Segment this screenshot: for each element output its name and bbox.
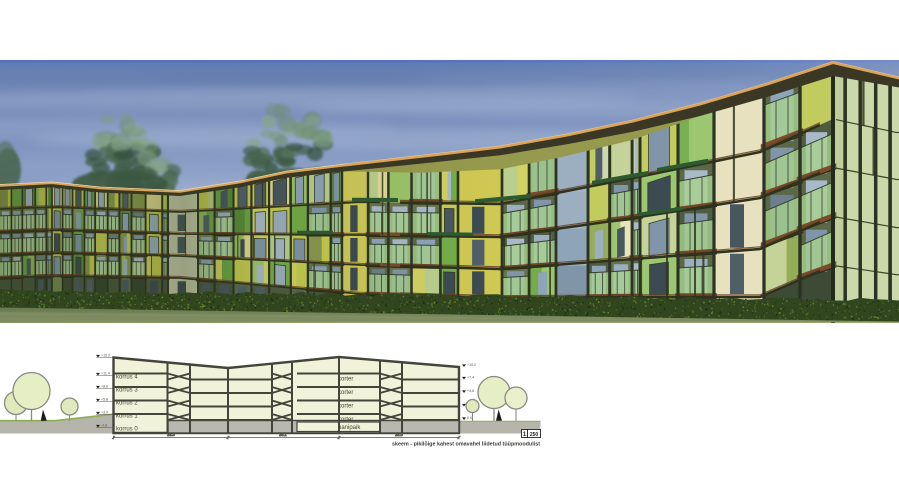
svg-text:28.5: 28.5 bbox=[167, 432, 176, 437]
svg-text:korrus 4: korrus 4 bbox=[116, 375, 138, 381]
svg-text:+11.4: +11.4 bbox=[101, 372, 110, 376]
svg-text:+5.8: +5.8 bbox=[101, 398, 108, 402]
svg-text:+15.2: +15.2 bbox=[101, 354, 110, 358]
svg-text:korrus 3: korrus 3 bbox=[116, 388, 138, 394]
svg-text:korter: korter bbox=[338, 404, 353, 410]
svg-text:+8.6: +8.6 bbox=[101, 385, 108, 389]
svg-text:korter: korter bbox=[338, 377, 353, 383]
svg-text:korrus 0: korrus 0 bbox=[116, 427, 138, 433]
svg-text:korrus 2: korrus 2 bbox=[116, 401, 138, 407]
svg-text:panipaik: panipaik bbox=[338, 425, 361, 431]
svg-text:korter: korter bbox=[338, 390, 353, 396]
svg-text:korrus 1: korrus 1 bbox=[116, 414, 138, 420]
svg-text:korter: korter bbox=[338, 417, 353, 423]
svg-text:0.0: 0.0 bbox=[467, 416, 472, 420]
svg-text:+3.0: +3.0 bbox=[101, 411, 108, 415]
svg-text:+10.2: +10.2 bbox=[467, 363, 476, 367]
svg-text:250: 250 bbox=[530, 432, 539, 438]
svg-text:28.5: 28.5 bbox=[395, 432, 404, 437]
svg-text:-2.8: -2.8 bbox=[101, 424, 107, 428]
svg-text:26.1: 26.1 bbox=[279, 432, 288, 437]
svg-text:skeem - pikilõige kahest omava: skeem - pikilõige kahest omavahel liidet… bbox=[392, 442, 540, 448]
svg-text:+4.6: +4.6 bbox=[467, 389, 474, 393]
svg-text:+7.4: +7.4 bbox=[467, 376, 474, 380]
